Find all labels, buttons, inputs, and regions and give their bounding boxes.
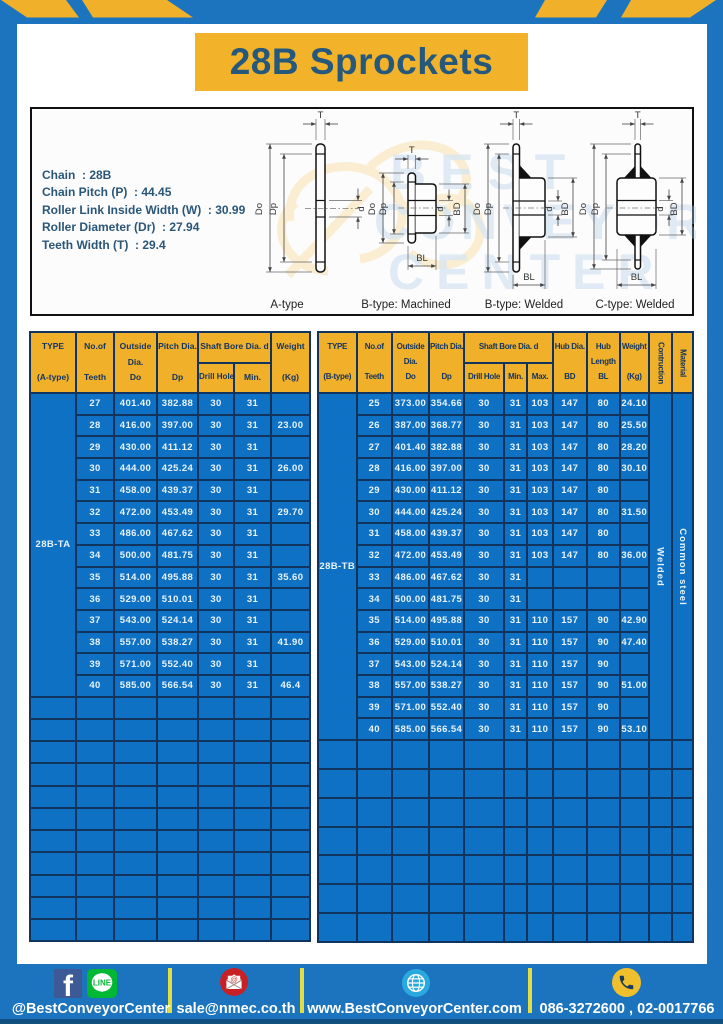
svg-text:B-type: Welded: B-type: Welded — [485, 299, 563, 311]
svg-text:BL: BL — [523, 272, 535, 283]
svg-text:BL: BL — [416, 253, 428, 264]
svg-text:A-type: A-type — [270, 299, 303, 311]
svg-text:d: d — [655, 206, 666, 211]
svg-text:Do: Do — [254, 203, 265, 215]
svg-text:Dp: Dp — [378, 203, 389, 215]
svg-text:T: T — [513, 110, 519, 121]
svg-text:LINE: LINE — [93, 979, 112, 988]
svg-text:d: d — [544, 206, 555, 211]
svg-text:d: d — [435, 206, 446, 211]
svg-text:B-type: Machined: B-type: Machined — [361, 299, 451, 311]
svg-text:BD: BD — [669, 202, 680, 215]
svg-text:BD: BD — [452, 202, 463, 215]
svg-text:Do: Do — [578, 203, 589, 215]
svg-text:BL: BL — [631, 272, 643, 283]
svg-text:C-type: Welded: C-type: Welded — [595, 299, 674, 311]
svg-text:d: d — [356, 206, 367, 211]
svg-text:@: @ — [230, 975, 238, 984]
svg-text:Dp: Dp — [590, 203, 601, 215]
svg-text:T: T — [318, 110, 324, 121]
svg-text:Dp: Dp — [483, 203, 494, 215]
svg-text:BD: BD — [560, 202, 571, 215]
svg-text:Do: Do — [472, 203, 483, 215]
svg-text:Dp: Dp — [268, 203, 279, 215]
svg-text:T: T — [635, 110, 641, 121]
svg-text:T: T — [409, 145, 415, 156]
svg-text:Do: Do — [367, 203, 378, 215]
